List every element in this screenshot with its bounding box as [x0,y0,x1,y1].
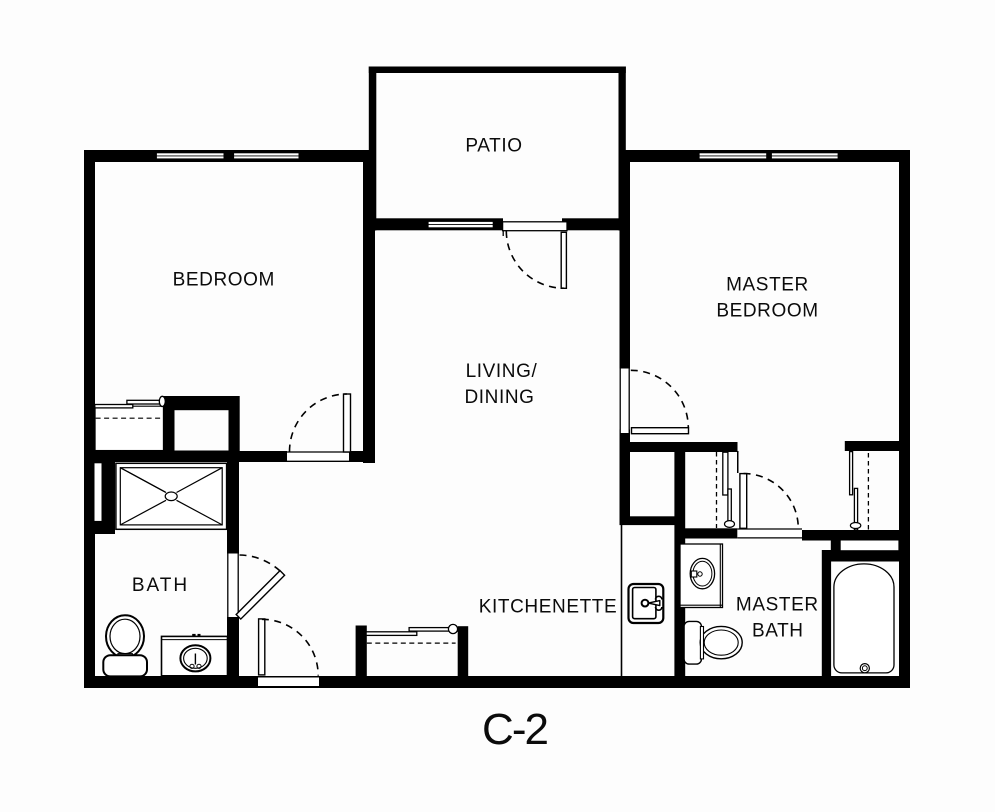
svg-text:DINING: DINING [464,387,534,408]
svg-text:MASTER: MASTER [736,594,819,615]
svg-text:BEDROOM: BEDROOM [173,270,275,291]
svg-text:C-2: C-2 [482,705,547,754]
svg-text:LIVING/: LIVING/ [466,361,538,382]
svg-text:BATH: BATH [752,620,804,641]
svg-text:KITCHENETTE: KITCHENETTE [479,596,618,617]
svg-text:PATIO: PATIO [465,136,522,157]
svg-text:MASTER: MASTER [726,274,809,295]
svg-text:BEDROOM: BEDROOM [716,300,818,321]
svg-text:BATH: BATH [132,575,189,596]
